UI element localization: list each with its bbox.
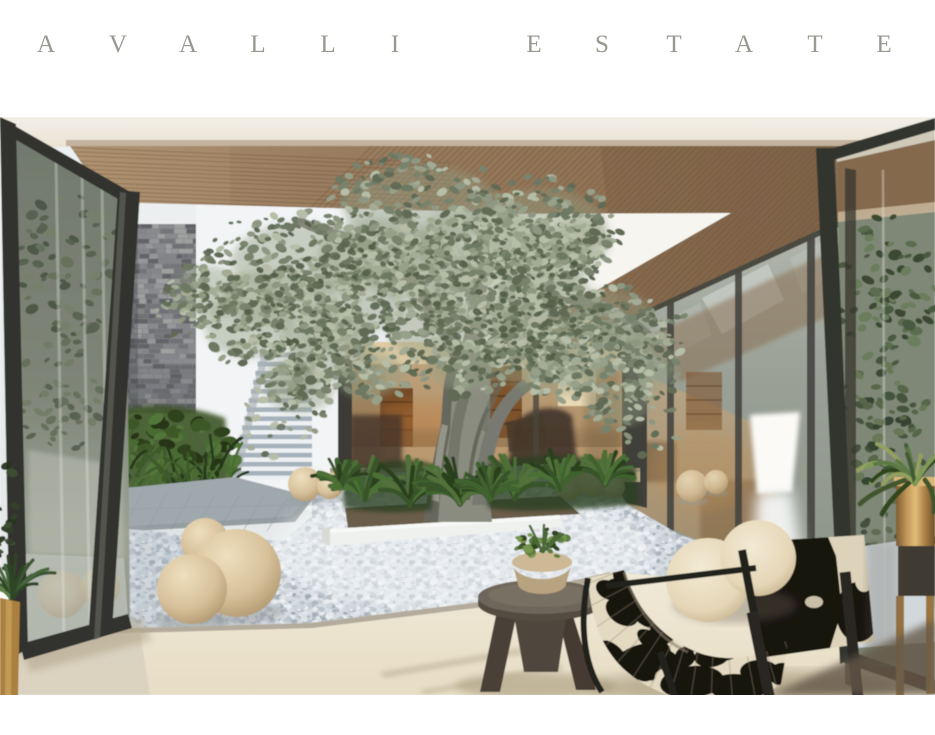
svg-text:V: V	[109, 31, 127, 58]
svg-text:A: A	[735, 31, 753, 58]
svg-text:T: T	[666, 31, 681, 58]
svg-text:E: E	[876, 31, 891, 58]
svg-text:L: L	[250, 31, 265, 58]
svg-text:T: T	[807, 31, 822, 58]
svg-text:E: E	[526, 31, 541, 58]
svg-text:L: L	[320, 31, 335, 58]
svg-text:S: S	[595, 31, 609, 58]
svg-text:A: A	[179, 31, 197, 58]
svg-text:A: A	[37, 31, 55, 58]
svg-text:I: I	[391, 31, 399, 58]
